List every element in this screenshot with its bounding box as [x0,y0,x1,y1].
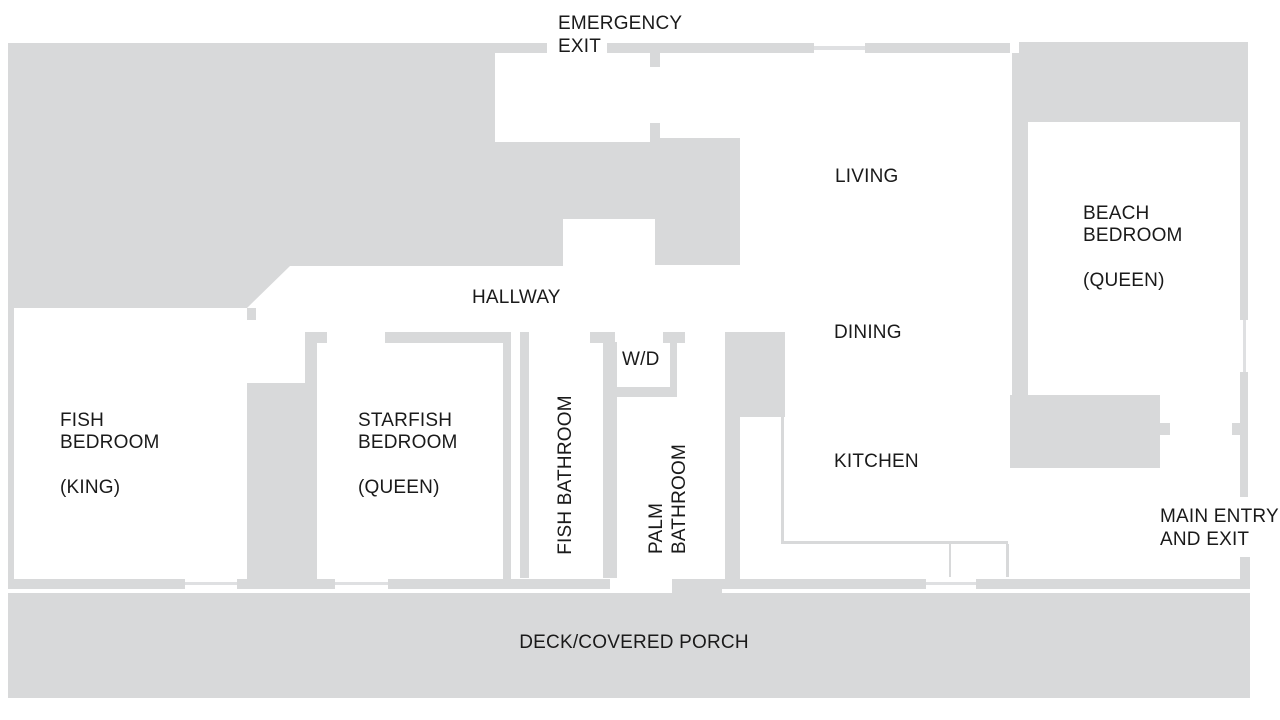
emergency-exit-line1: EMERGENCY [558,12,682,35]
floor-plan: EMERGENCY EXIT LIVING DINING KITCHEN HAL… [0,0,1280,720]
main-entry-line2: AND EXIT [1160,528,1279,551]
beach-bedroom-line1: BEACH [1083,203,1183,225]
dining-room-label: DINING [834,322,902,344]
kitchen-label: KITCHEN [834,451,919,473]
palm-bathroom-label: PALM BATHROOM [645,444,691,554]
wall-north-band-left [8,43,547,53]
wd-closet-label: W/D [622,349,660,371]
wall-upper-left-mass-foot [8,266,247,308]
wall-exit-corridor-jamb-bottom [650,123,660,142]
fish-bedroom-label: FISH BEDROOM (KING) [60,410,160,499]
deck-label: DECK/COVERED PORCH [519,632,749,654]
starfish-bedroom-label: STARFISH BEDROOM (QUEEN) [358,410,458,499]
emergency-exit-line2: EXIT [558,35,682,58]
wall-beach-bedroom-west [1012,53,1028,395]
wall-fish-bathroom-north [590,332,615,343]
living-room-label: LIVING [835,166,899,188]
wall-wd-south [617,387,677,397]
wall-starfish-west [305,332,317,583]
counter-island-right-edge [1006,544,1009,577]
starfish-bedroom-line1: STARFISH [358,410,458,432]
wall-hallway-dining-block [725,332,785,417]
palm-bathroom-line1: PALM [645,444,668,554]
wall-south-3 [388,579,610,589]
wall-beach-bedroom-north-block [1019,42,1248,122]
wall-fish-door-jamb [247,308,256,320]
fish-bedroom-line2: BEDROOM [60,432,160,454]
wall-diagonal-corner [247,266,290,308]
wall-under-exit-corridor [495,142,655,219]
wall-wd-east [670,342,677,397]
wall-kitchen-west [725,417,740,589]
window-south-kitchen [926,582,976,585]
beach-bedroom-line3: (QUEEN) [1083,270,1183,292]
fish-bathroom-label: FISH BATHROOM [555,395,577,555]
wall-east-upper [1240,115,1248,320]
counter-island-left-edge [949,544,951,577]
emergency-exit-label: EMERGENCY EXIT [558,12,682,58]
wall-fish-bathroom-west [520,332,529,578]
wall-east-middle [1240,372,1248,497]
wall-wd-north-stub [663,332,685,343]
palm-bathroom-line2: BATHROOM [668,444,691,554]
wall-fish-bathroom-east [603,342,617,578]
wall-starfish-east [503,332,511,583]
main-entry-line1: MAIN ENTRY [1160,505,1279,528]
wall-beach-bedroom-south-block [1010,395,1160,468]
beach-bedroom-line2: BEDROOM [1083,225,1183,247]
fish-bedroom-line1: FISH [60,410,160,432]
wall-upper-left-mass-lower [8,219,563,266]
wall-north-right [865,43,1010,53]
window-north [814,46,865,50]
wall-starfish-north-stub [305,332,327,343]
wall-starfish-north [385,332,511,343]
wall-south-2 [237,579,335,589]
hallway-label: HALLWAY [472,287,561,309]
wall-upper-left-mass [8,53,495,219]
counter-kitchen-west-edge [781,417,784,543]
beach-bedroom-label: BEACH BEDROOM (QUEEN) [1083,203,1183,292]
window-east [1243,320,1246,372]
fish-bedroom-line3: (KING) [60,477,160,499]
window-south-starfish [335,582,388,585]
wall-beach-door-jamb-left [1160,423,1170,435]
wall-beach-door-jamb-right [1232,423,1241,435]
starfish-bedroom-line3: (QUEEN) [358,477,458,499]
counter-kitchen-south-edge [781,541,1008,544]
main-entry-label: MAIN ENTRY AND EXIT [1160,505,1279,551]
wall-south-5 [976,579,1250,589]
starfish-bedroom-line2: BEDROOM [358,432,458,454]
window-south-fish [185,582,237,585]
wall-south-4 [722,579,926,589]
wall-west-lower [8,308,14,589]
wall-living-west-block [655,138,740,265]
wall-south-1 [8,579,185,589]
wall-south-pillar [672,579,722,595]
